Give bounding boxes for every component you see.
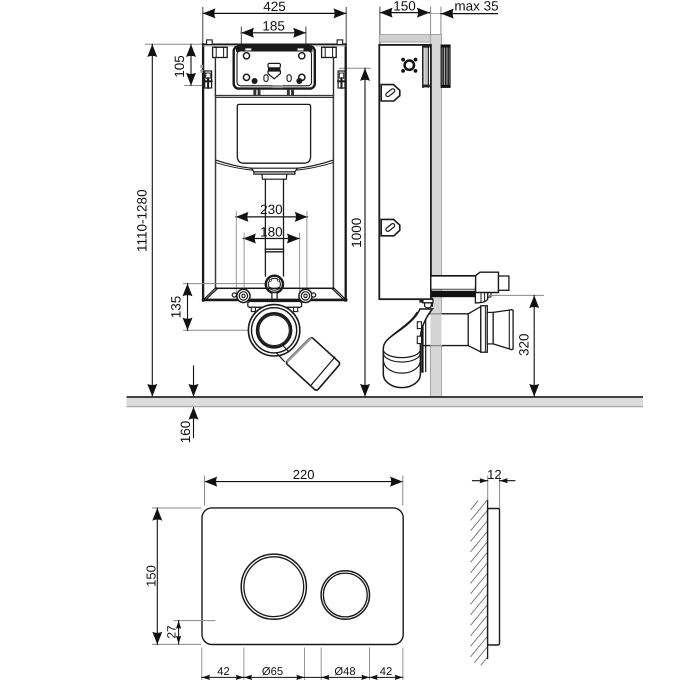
svg-text:185: 185 (262, 18, 285, 33)
svg-text:150: 150 (393, 0, 416, 13)
svg-text:1110-1280: 1110-1280 (135, 189, 150, 252)
svg-text:Ø65: Ø65 (262, 666, 283, 678)
svg-text:12: 12 (487, 467, 501, 482)
svg-text:320: 320 (517, 333, 532, 356)
svg-text:425: 425 (263, 0, 286, 14)
svg-text:135: 135 (169, 296, 184, 319)
svg-text:220: 220 (293, 467, 315, 482)
svg-text:180: 180 (260, 224, 283, 239)
svg-text:Ø48: Ø48 (334, 666, 355, 678)
svg-text:230: 230 (260, 202, 283, 217)
svg-text:105: 105 (172, 55, 187, 78)
svg-text:1000: 1000 (349, 218, 364, 248)
svg-text:27: 27 (164, 625, 178, 639)
svg-text:42: 42 (380, 666, 392, 678)
svg-text:150: 150 (144, 565, 159, 587)
svg-text:42: 42 (217, 666, 229, 678)
svg-text:160: 160 (178, 421, 193, 444)
svg-text:max 35: max 35 (454, 0, 498, 14)
